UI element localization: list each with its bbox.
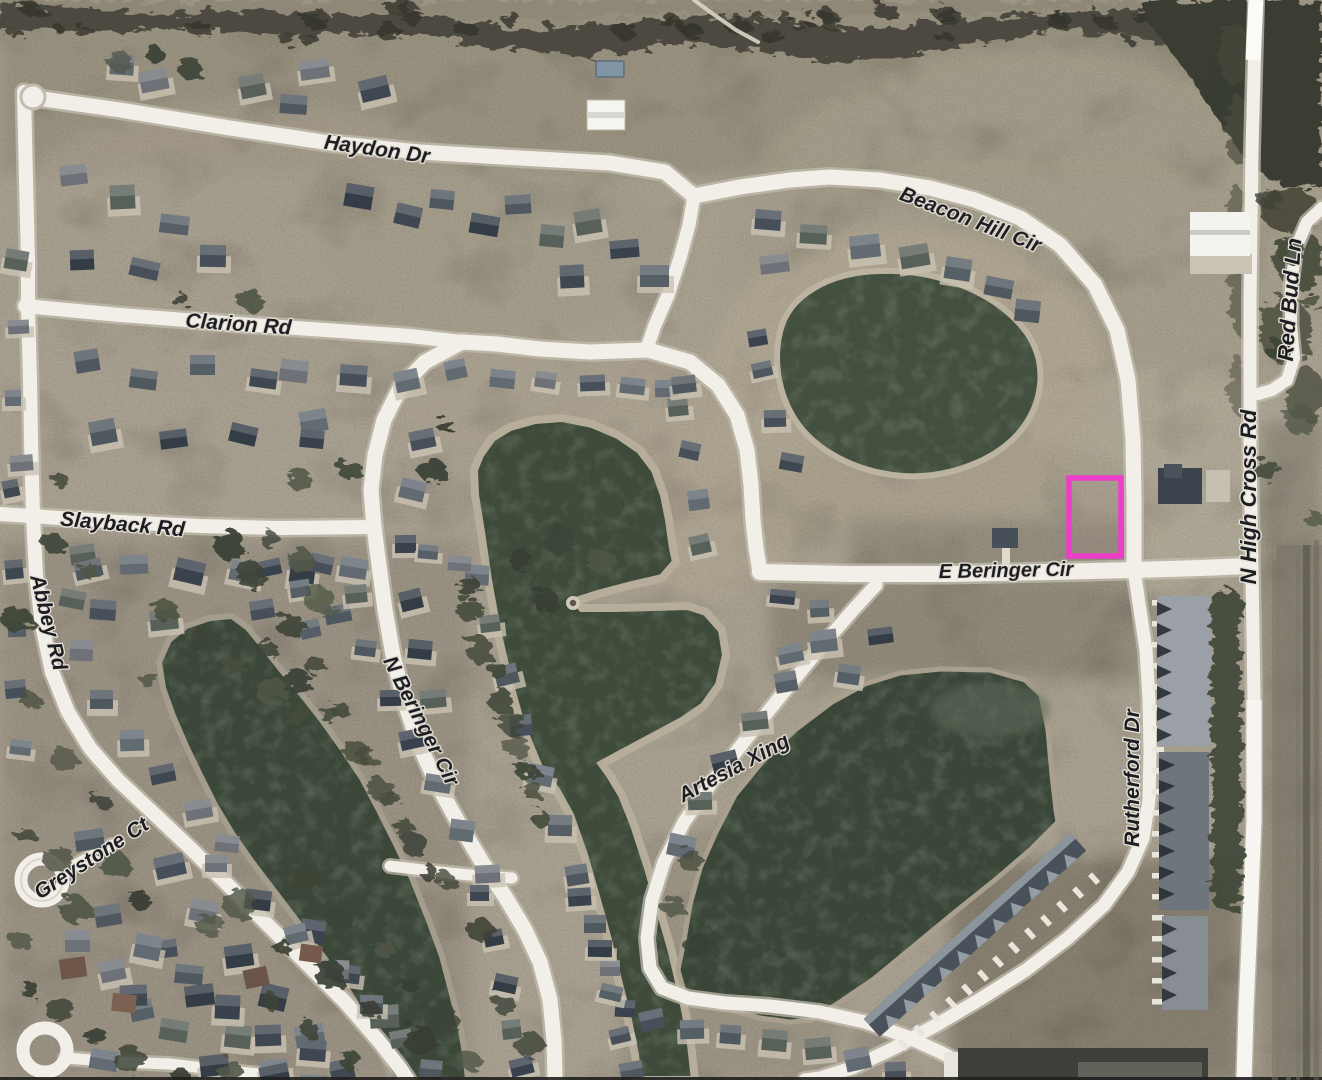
svg-text:N High Cross Rd: N High Cross Rd (1236, 409, 1261, 584)
svg-text:Rutherford Dr: Rutherford Dr (1121, 707, 1144, 846)
svg-text:E Beringer Cir: E Beringer Cir (938, 559, 1074, 583)
